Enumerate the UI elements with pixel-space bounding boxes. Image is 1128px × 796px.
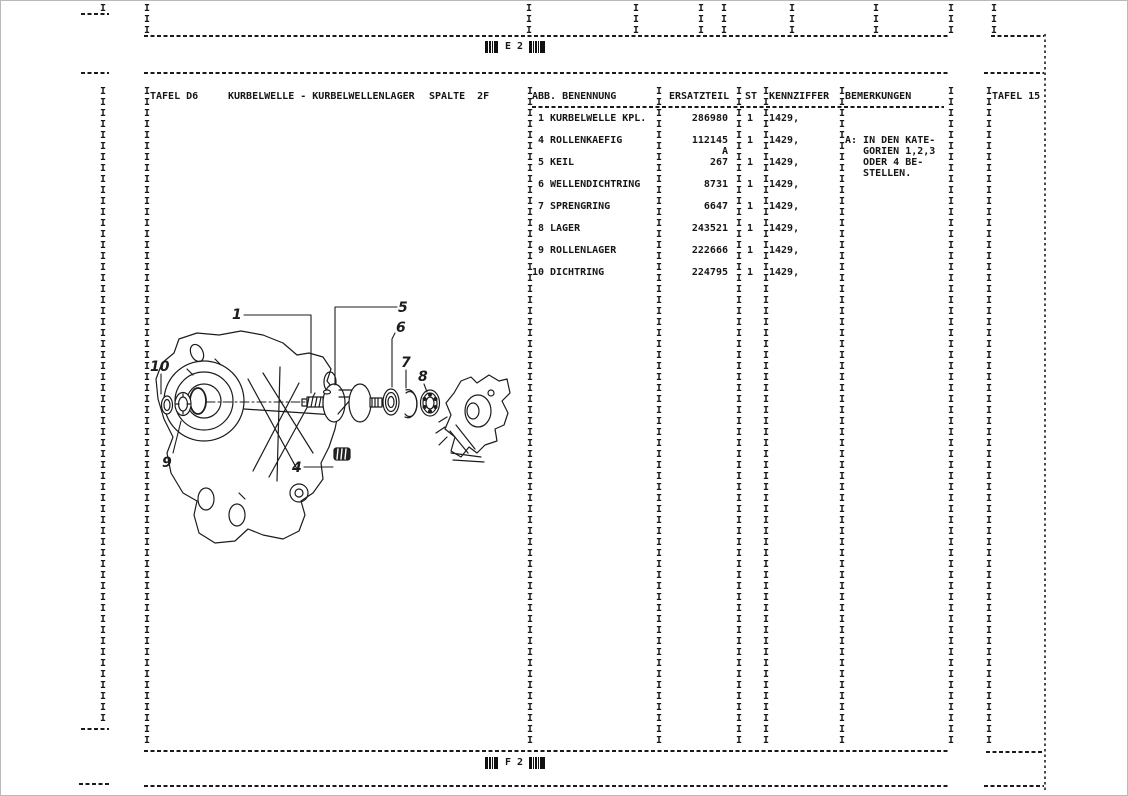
- table-cell-name: ROLLENLAGER: [550, 245, 616, 256]
- table-row: [1, 212, 1128, 223]
- callout-5: 5: [398, 300, 408, 316]
- table-cell-name: DICHTRING: [550, 267, 604, 278]
- form-rule-column: I I I: [789, 3, 795, 36]
- table-cell-st: 1: [747, 179, 753, 190]
- callout-7: 7: [401, 355, 411, 371]
- barcode-bars: [485, 757, 499, 769]
- table-row: 6WELLENDICHTRING873111429,: [1, 179, 1128, 190]
- table-row: 7SPRENGRING664711429,: [1, 201, 1128, 212]
- header-kennziffer: KENNZIFFER: [769, 91, 829, 102]
- part-wellendichtring: [383, 389, 399, 415]
- table-row: A GORIEN 1,2,3: [1, 146, 1128, 157]
- table-row: [1, 190, 1128, 201]
- sort-mark-f2: F 2: [485, 756, 546, 769]
- table-cell-kz: 1429,: [769, 245, 799, 256]
- dashed-rule: [144, 750, 948, 752]
- table-cell-st: 1: [747, 223, 753, 234]
- barcode-label: F 2: [505, 757, 523, 769]
- dashed-rule: [81, 13, 109, 15]
- form-rule-column: I I I: [721, 3, 727, 36]
- dashed-rule: [144, 785, 948, 787]
- form-rule-column: I I I I I I I I I I I I I I I I I I I I …: [656, 86, 662, 746]
- part-rollenkaefig: [334, 448, 350, 460]
- form-rule-column: I I I: [526, 3, 532, 36]
- form-rule-column: I I I I I I I I I I I I I I I I I I I I …: [986, 86, 992, 746]
- table-cell-st: 1: [747, 157, 753, 168]
- header-st: ST: [745, 91, 757, 102]
- fold-dotted-line: [1044, 34, 1046, 791]
- part-dichtring: [162, 396, 173, 414]
- callout-9: 9: [162, 455, 172, 471]
- table-cell-st: 1: [747, 113, 753, 124]
- table-row: 10DICHTRING22479511429,: [1, 267, 1128, 278]
- table-row: STELLEN.: [1, 168, 1128, 179]
- barcode-bars: [529, 41, 546, 53]
- table-cell-rem: A: IN DEN KATE-: [845, 135, 935, 146]
- table-cell-name: LAGER: [550, 223, 580, 234]
- header-bemerkungen: BEMERKUNGEN: [845, 91, 911, 102]
- table-cell-name: SPRENGRING: [550, 201, 610, 212]
- form-rule-column: I I I I I I I I I I I I I I I I I I I I …: [948, 86, 954, 746]
- form-rule-column: I I I I I I I I I I I I I I I I I I I I …: [527, 86, 533, 746]
- table-cell-kz: 1429,: [769, 201, 799, 212]
- form-rule-column: I I I: [873, 3, 879, 36]
- part-rollenlager: [175, 393, 191, 416]
- table-row: [1, 124, 1128, 135]
- table-cell-rem: STELLEN.: [845, 168, 911, 179]
- scanned-parts-catalog-page: TAFEL D6 KURBELWELLE - KURBELWELLENLAGER…: [0, 0, 1128, 796]
- callout-leader-lines: [161, 307, 427, 467]
- part-keil: [324, 390, 331, 394]
- form-rule-column: I I I: [633, 3, 639, 36]
- table-cell-kz: 1429,: [769, 223, 799, 234]
- callout-4: 4: [291, 460, 302, 476]
- dashed-rule: [984, 72, 1044, 74]
- flywheel: [436, 375, 510, 462]
- callout-1: 1: [232, 307, 242, 323]
- form-rule-column: I I I I I I I I I I I I I I I I I I I I …: [736, 86, 742, 746]
- table-header-row: ABB. BENENNUNG ERSATZTEIL ST KENNZIFFER …: [1, 91, 1128, 102]
- table-cell-name: KURBELWELLE KPL.: [550, 113, 646, 124]
- table-row: [1, 256, 1128, 267]
- dashed-rule: [144, 35, 948, 37]
- table-cell-rem: GORIEN 1,2,3: [845, 146, 935, 157]
- dashed-rule: [144, 72, 948, 74]
- table-cell-st: 1: [747, 267, 753, 278]
- table-cell-part: 112145: [665, 135, 728, 146]
- dashed-rule: [986, 751, 1044, 753]
- table-cell-kz: 1429,: [769, 135, 799, 146]
- dashed-rule: [984, 785, 1044, 787]
- dashed-rule: [991, 35, 1044, 37]
- callout-6: 6: [396, 320, 406, 336]
- callout-8: 8: [418, 369, 428, 385]
- table-cell-part: 267: [665, 157, 728, 168]
- header-abb-benennung: ABB. BENENNUNG: [532, 91, 616, 102]
- table-cell-name: KEIL: [550, 157, 574, 168]
- part-sprengring: [405, 390, 417, 418]
- barcode-label: E 2: [505, 41, 523, 53]
- form-rule-column: I I I: [698, 3, 704, 36]
- header-ersatzteil: ERSATZTEIL: [669, 91, 729, 102]
- table-cell-kz: 1429,: [769, 179, 799, 190]
- table-row: [1, 234, 1128, 245]
- table-cell-part: 286980: [665, 113, 728, 124]
- parts-diagram: 1 4 5 6 7 8 9 10: [149, 293, 521, 555]
- form-rule-column: I I I I I I I I I I I I I I I I I I I I …: [100, 86, 106, 724]
- table-row: 9ROLLENLAGER22266611429,: [1, 245, 1128, 256]
- table-row: 1KURBELWELLE KPL.28698011429,: [1, 113, 1128, 124]
- table-cell-rem: ODER 4 BE-: [845, 157, 923, 168]
- dashed-rule: [81, 728, 109, 730]
- table-cell-name: ROLLENKAEFIG: [550, 135, 622, 146]
- sort-mark-e2: E 2: [485, 40, 546, 53]
- table-cell-kz: 1429,: [769, 157, 799, 168]
- table-cell-name: WELLENDICHTRING: [550, 179, 640, 190]
- barcode-bars: [485, 41, 499, 53]
- table-row: 8LAGER24352111429,: [1, 223, 1128, 234]
- table-cell-part: 8731: [665, 179, 728, 190]
- table-cell-part: 6647: [665, 201, 728, 212]
- table-cell-kz: 1429,: [769, 267, 799, 278]
- table-cell-kz: 1429,: [769, 113, 799, 124]
- table-cell-part: 224795: [665, 267, 728, 278]
- dashed-rule: [81, 72, 109, 74]
- form-rule-column: I I I: [948, 3, 954, 36]
- dashed-rule: [79, 783, 109, 785]
- table-cell-part: 222666: [665, 245, 728, 256]
- form-rule-column: I I I I I I I I I I I I I I I I I I I I …: [839, 86, 845, 746]
- table-cell-part: A: [665, 146, 728, 157]
- part-lager: [421, 390, 440, 416]
- callout-10: 10: [150, 359, 170, 375]
- table-row: 4ROLLENKAEFIG11214511429,A: IN DEN KATE-: [1, 135, 1128, 146]
- table-cell-st: 1: [747, 135, 753, 146]
- part-kurbelwelle: [302, 384, 385, 422]
- form-rule-column: I I I I I I I I I I I I I I I I I I I I …: [763, 86, 769, 746]
- table-cell-part: 243521: [665, 223, 728, 234]
- table-row: 5KEIL26711429, ODER 4 BE-: [1, 157, 1128, 168]
- table-cell-st: 1: [747, 201, 753, 212]
- form-rule-column: I I I: [144, 3, 150, 36]
- table-cell-st: 1: [747, 245, 753, 256]
- barcode-bars: [529, 757, 546, 769]
- form-rule-column: I I I: [991, 3, 997, 36]
